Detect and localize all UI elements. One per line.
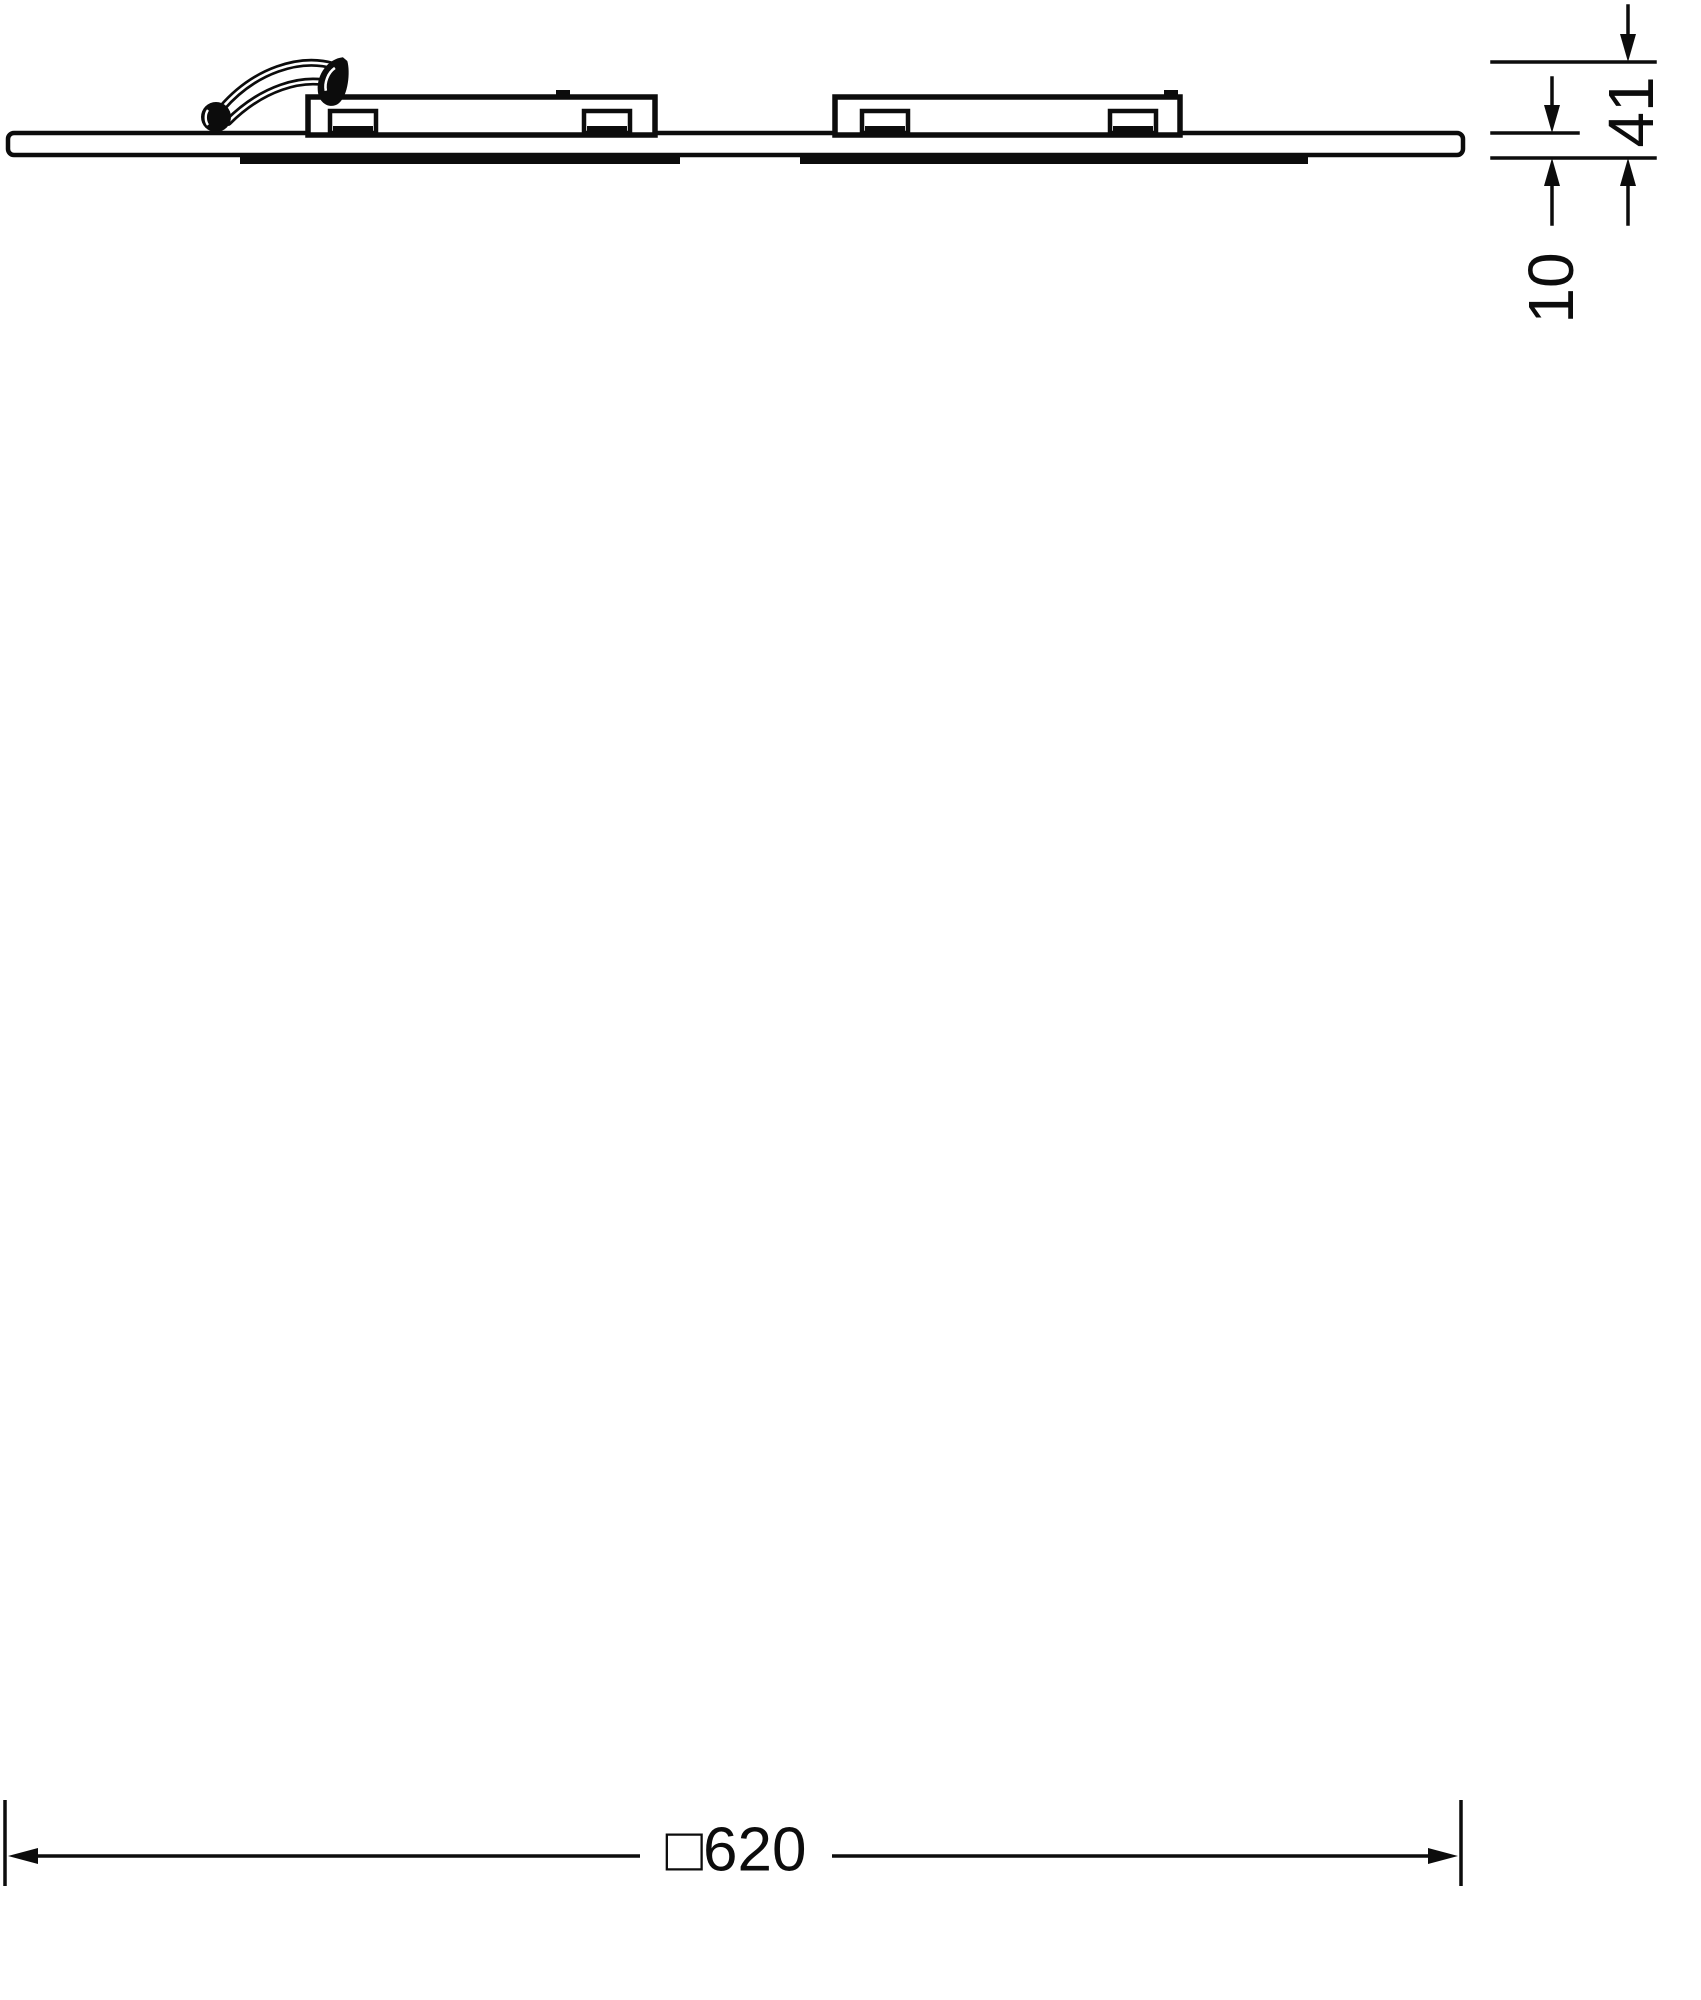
side-profile-view (8, 54, 1463, 164)
dim-total-height-label: 41 (1595, 76, 1667, 147)
top-tick (1164, 90, 1178, 97)
module-foot-hatch (1113, 126, 1153, 133)
width-dimension: □620 (5, 1800, 1461, 1886)
arrow-left-icon (8, 1848, 38, 1864)
arrow-up-icon (1544, 158, 1560, 186)
height-dimensions: 41 10 (1492, 6, 1667, 324)
technical-drawing: 41 10 □620 (0, 0, 1701, 2000)
drawing-page: 41 10 □620 (0, 0, 1701, 2000)
module-foot-hatch (865, 126, 905, 133)
module-foot-hatch (587, 126, 627, 133)
arrow-up-icon (1620, 158, 1636, 186)
panel-slab-side (8, 133, 1463, 155)
dim-outer-width-label: □620 (666, 1815, 807, 1884)
dim-panel-thickness-label: 10 (1515, 252, 1587, 323)
top-tick (556, 90, 570, 97)
arrow-down-icon (1620, 34, 1636, 62)
module-foot-hatch (333, 126, 373, 133)
side-view-generated (8, 54, 1463, 164)
diffuser-strip (800, 155, 1308, 164)
arrow-down-icon (1544, 105, 1560, 133)
arrow-right-icon (1428, 1848, 1458, 1864)
diffuser-strip (240, 155, 680, 164)
